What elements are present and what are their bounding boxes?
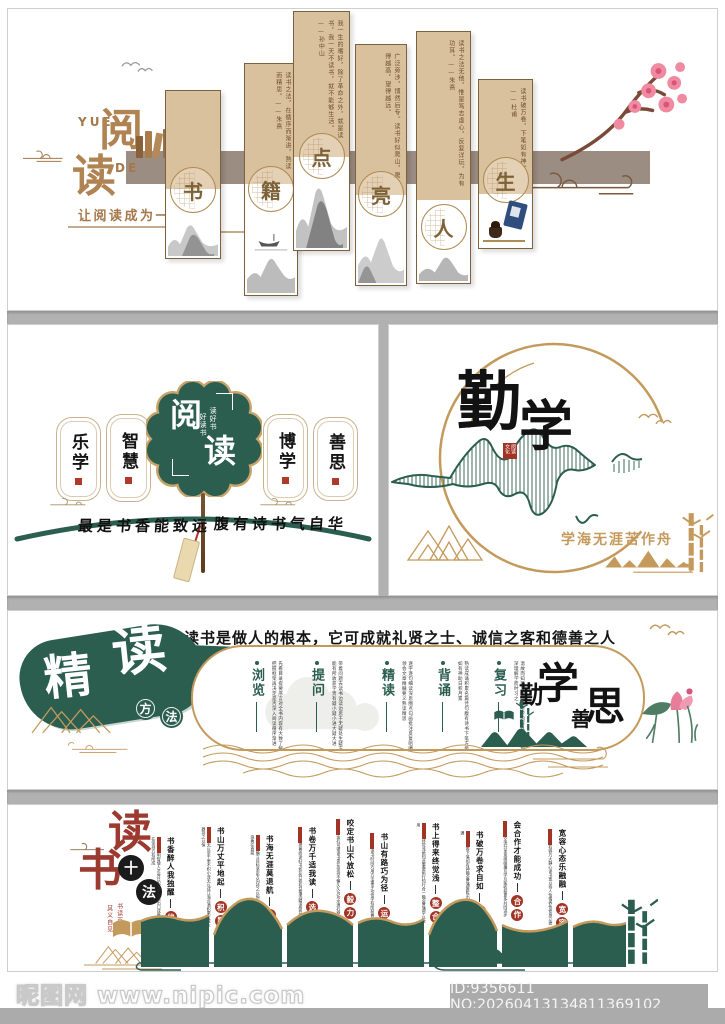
seal-icon [125, 477, 132, 484]
tablet-label: 智慧 [116, 432, 141, 472]
line-mountains-icon [30, 697, 125, 737]
method-phrase: 书香醉人我独醒 [165, 837, 176, 897]
banner-character: 点 [312, 142, 332, 171]
banner-character: 亮 [371, 180, 391, 209]
tablet-shansi: 善思 [313, 417, 358, 501]
method-description: 带着问题去读书边读边思于无疑处生疑方能有所收获学贵有疑小疑小进大疑大进 [330, 661, 343, 751]
method-beisong: 背诵 熟读成诵积累名篇佳句腹有诗书下笔方能如有神助日积月累 [433, 661, 469, 751]
watermark-id-badge: ID:9356611 NO:20260413134811369102 [450, 984, 708, 1009]
banner-quote: 读书之法，在循序而渐进，熟读而精思。——朱熹 [273, 72, 292, 172]
cloud-icon [26, 737, 176, 753]
banner-character: 生 [496, 166, 516, 195]
fan-subtext: 读好书 [208, 407, 217, 431]
cloud-icon [513, 159, 648, 199]
divider-line [256, 702, 257, 732]
character-medallion: 人 [421, 204, 467, 250]
banner-quote: 我一生的嗜好，除了革命之外，就是读书，我一天不读书，就不能够生活。——孙中山 [316, 20, 344, 145]
method-description: 熟读成诵积累名篇佳句腹有诗书下笔方能如有神助日积月累 [456, 661, 469, 751]
banner-sheng: 读书破万卷，下笔如有神。——杜甫 生 [478, 79, 533, 249]
banner-dian: 我一生的嗜好，除了革命之外，就是读书，我一天不读书，就不能够生活。——孙中山 点 [293, 11, 350, 251]
panel-reading-fan: 乐学 智慧 博学 善思 阅 读 读好书 好读书 [7, 324, 379, 596]
panel-ten-reading-methods: 读 书 十 法 书读百遍 其义自见 读书使人明智使人灵秀日积月累自然出口成章开卷… [7, 804, 718, 972]
tablet-lexue: 乐学 [56, 417, 101, 501]
slogan-char: 学 [537, 663, 579, 705]
method-circle-fang: 方 [134, 697, 157, 720]
wave-lines [203, 739, 643, 783]
banner-character: 人 [434, 213, 454, 242]
tablet-boxue: 博学 [263, 414, 308, 502]
watermark-site-logo: 昵图网 www.nipic.com [16, 976, 305, 1010]
panel-reading-methods: 读书是做人的根本，它可成就礼贤之士、诚信之客和德善之人 精 读 方 法 浏览 先… [7, 610, 718, 790]
ink-mountain-icon [296, 176, 347, 248]
method-description: 先看目录提要序言对全书内容有大致了解把握框架再决定是否深入阅读循序渐进 [270, 661, 283, 751]
row-separator [7, 790, 718, 804]
method-jingdu: 精读 逐字逐句细读深思圈点勾画批注反复咀嚼领会文章精髓要义熟读精思 [377, 661, 413, 751]
ink-mountain-icon [419, 245, 468, 281]
method-label: 浏览 [247, 668, 266, 698]
red-seal: 阅读文化 [503, 443, 517, 459]
book-teapot-icon [481, 202, 530, 246]
ink-boat-icon [247, 225, 295, 293]
bird-icon [120, 59, 156, 77]
method-description: 逐字逐句细读深思圈点勾画批注反复咀嚼领会文章精髓要义熟读精思 [400, 661, 413, 751]
character-medallion: 生 [483, 157, 529, 203]
method-liulan: 浏览 先看目录提要序言对全书内容有大致了解把握框架再决定是否深入阅读循序渐进 [247, 661, 283, 751]
banner-ji: 读书之法，在循序而渐进，熟读而精思。——朱熹 籍 [244, 63, 298, 296]
slogan-char: 思 [585, 687, 625, 727]
bracket-decoration [216, 393, 233, 410]
tablet-label: 乐学 [66, 433, 91, 473]
panel-diligent-study: 勤 学 阅读文化 学海无涯苦作舟 [388, 324, 718, 596]
seal-icon [282, 477, 289, 484]
panel-books-light-life: YUE 阅 读 DE 让阅读成为一种习惯 书 读书之法，在循序而渐进，熟读而精思… [7, 8, 718, 311]
banner-quote: 广泛旁涉，博然后专。读书好似爬山，爬得越高，望得越远。 [382, 53, 401, 183]
lotus-icon [636, 679, 708, 745]
banner-shu: 书 [165, 90, 221, 259]
bracket-decoration [172, 459, 189, 476]
logo-de-text: DE [115, 161, 139, 175]
calligraphy-right: 腹有诗书气自华 [213, 513, 347, 534]
fan-subtext: 好读书 [198, 413, 207, 437]
ink-mountain-icon [168, 216, 218, 256]
methods-pill: 浏览 先看目录提要序言对全书内容有大致了解把握框架再决定是否深入阅读循序渐进 提… [191, 645, 645, 751]
calligraphy-left: 最是书香能致远 [77, 515, 211, 536]
bamboo-icon [681, 503, 715, 581]
fan-icon: 阅 读 读好书 好读书 [146, 381, 262, 497]
bottom-gray-bar [0, 1008, 725, 1024]
method-label: 精读 [377, 668, 396, 698]
base-line [133, 959, 613, 973]
bird-icon [648, 621, 688, 641]
row-separator [7, 311, 718, 324]
bird-icon [637, 410, 675, 430]
title-char-qin: 勤 [457, 371, 521, 435]
title-char-jing: 精 [42, 651, 95, 704]
banner-liang: 广泛旁涉，博然后专。读书好似爬山，爬得越高，望得越远。 亮 [355, 44, 407, 286]
method-circle-fa: 法 [160, 705, 183, 728]
tablet-label: 博学 [273, 432, 298, 472]
book-icon [493, 709, 515, 723]
triangle-mountains-icon [404, 515, 489, 563]
bookmark-tag [173, 538, 200, 583]
banner-character: 籍 [261, 175, 281, 204]
seal-icon [75, 478, 82, 485]
green-hills [141, 893, 626, 967]
plum-blossom-icon [560, 47, 688, 165]
method-label: 复习 [489, 668, 508, 698]
title-char-shu: 书 [78, 849, 122, 893]
fan-char-du: 读 [204, 435, 236, 467]
method-tiwen: 提问 带着问题去读书边读边思于无疑处生疑方能有所收获学贵有疑小疑小进大疑大进 [307, 661, 343, 751]
motto-text: 学海无涯苦作舟 [561, 529, 673, 549]
row-separator [7, 596, 718, 610]
tablet-zhihui: 智慧 [106, 414, 151, 502]
underline-decoration [68, 225, 258, 237]
ink-mountain-icon [358, 225, 404, 283]
character-medallion: 亮 [358, 171, 404, 217]
bullet-dot [255, 661, 259, 665]
circle-shi: 十 [118, 855, 144, 881]
title-char-xue: 学 [519, 399, 573, 453]
logo-char-du: 读 [72, 155, 116, 199]
banner-character: 书 [183, 176, 203, 205]
method-label: 提问 [307, 668, 326, 698]
bamboo-icon [620, 897, 658, 967]
character-medallion: 书 [170, 167, 216, 213]
method-label: 背诵 [433, 668, 452, 698]
column-separator [379, 324, 388, 596]
seal-icon [332, 478, 339, 485]
red-chip [157, 837, 161, 853]
tablet-label: 善思 [323, 433, 348, 473]
design-preview-page: YUE 阅 读 DE 让阅读成为一种习惯 书 读书之法，在循序而渐进，熟读而精思… [0, 0, 725, 1024]
character-medallion: 籍 [248, 166, 294, 212]
character-medallion: 点 [299, 133, 345, 179]
title-char-du: 读 [109, 620, 168, 679]
banner-ren: 读书之法无他，惟是笃志虚心，反复详玩，为有功耳。——朱熹 人 [416, 31, 471, 284]
banner-quote: 读书之法无他，惟是笃志虚心，反复详玩，为有功耳。——朱熹 [446, 40, 465, 188]
